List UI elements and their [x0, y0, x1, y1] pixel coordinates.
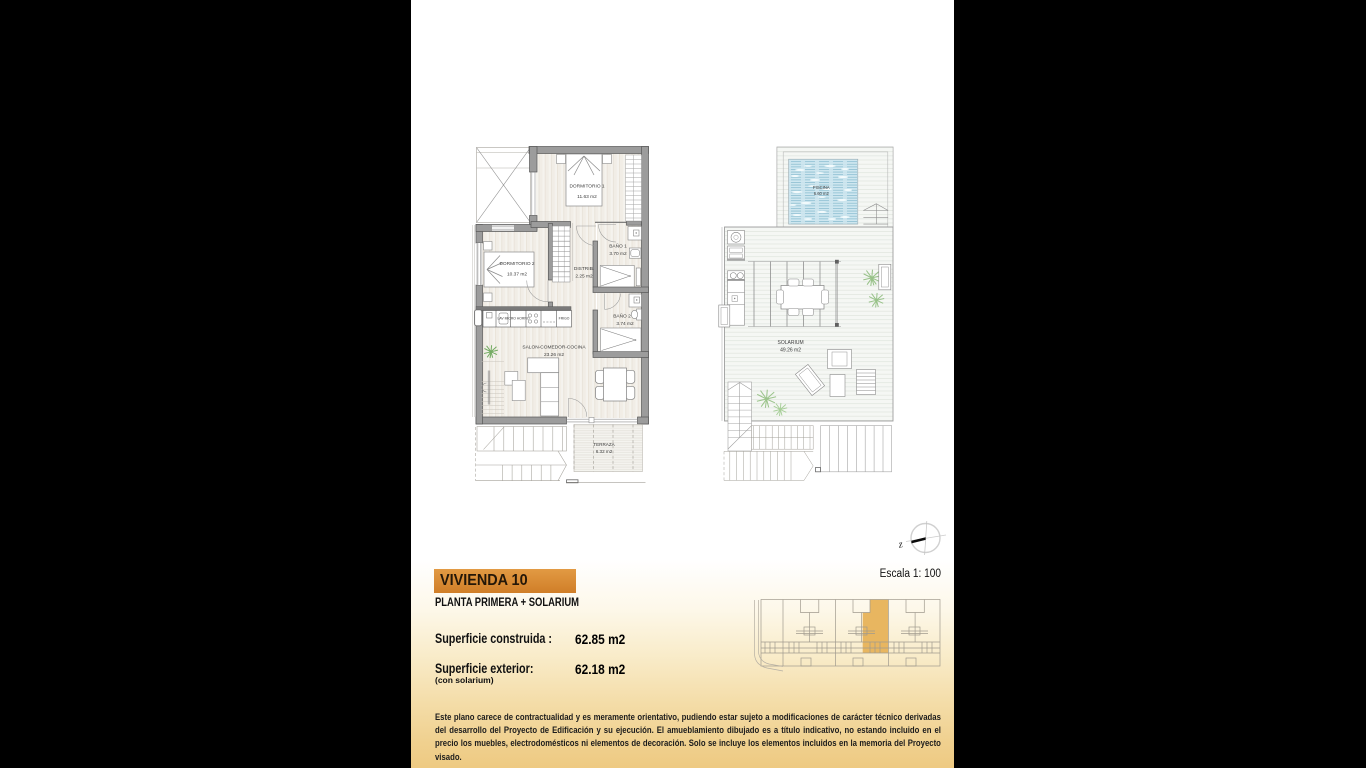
svg-text:LAV MICRO HORNO: LAV MICRO HORNO	[498, 317, 530, 321]
svg-text:10.37 m2: 10.37 m2	[507, 272, 527, 278]
svg-text:TERRAZA: TERRAZA	[593, 442, 615, 447]
svg-text:BAÑO 1: BAÑO 1	[609, 243, 627, 250]
svg-text:DORMITORIO 2: DORMITORIO 2	[499, 261, 534, 267]
svg-text:FRIGO: FRIGO	[559, 317, 570, 321]
svg-text:PISCINA: PISCINA	[813, 185, 830, 190]
svg-text:SALON-COMEDOR-COCINA: SALON-COMEDOR-COCINA	[522, 345, 586, 351]
svg-text:3.74 m2: 3.74 m2	[616, 321, 634, 327]
svg-text:2.25 m2: 2.25 m2	[575, 274, 593, 280]
svg-text:BAÑO 2: BAÑO 2	[613, 313, 631, 320]
svg-text:6.32 m2: 6.32 m2	[596, 449, 613, 454]
svg-text:6.60 m2: 6.60 m2	[814, 191, 830, 196]
svg-text:DISTRIB.: DISTRIB.	[574, 266, 594, 272]
svg-text:11.63 m2: 11.63 m2	[577, 194, 597, 200]
svg-text:DORMITORIO 1: DORMITORIO 1	[569, 184, 604, 190]
svg-text:49.26 m2: 49.26 m2	[780, 348, 801, 354]
svg-text:3.70 m2: 3.70 m2	[609, 251, 627, 257]
svg-text:SOLARIUM: SOLARIUM	[778, 340, 804, 346]
svg-text:23.26 m2: 23.26 m2	[544, 352, 564, 358]
svg-text:z: z	[897, 539, 904, 551]
